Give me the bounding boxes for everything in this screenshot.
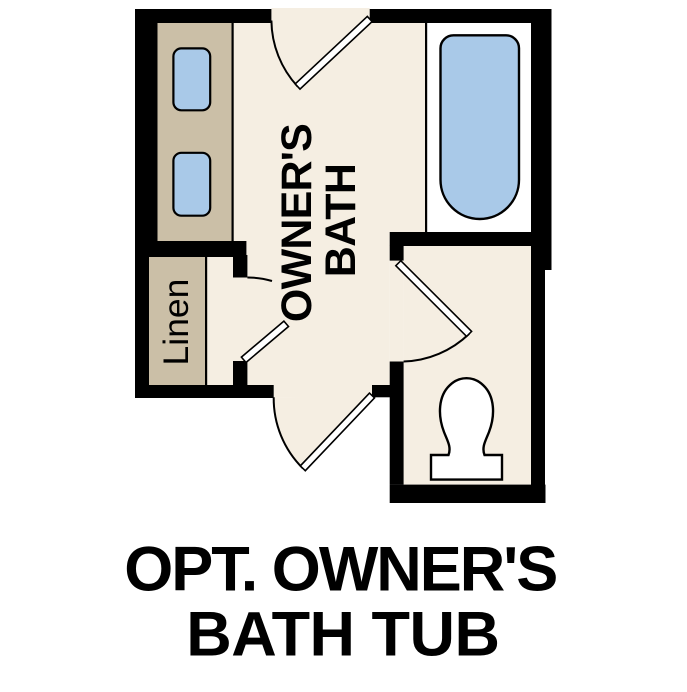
svg-text:Linen: Linen — [156, 279, 196, 366]
svg-text:OPT. OWNER'S: OPT. OWNER'S — [124, 535, 556, 605]
svg-text:BATH TUB: BATH TUB — [186, 599, 499, 669]
svg-text:OWNER'S: OWNER'S — [273, 124, 321, 322]
svg-text:BATH: BATH — [317, 164, 365, 277]
